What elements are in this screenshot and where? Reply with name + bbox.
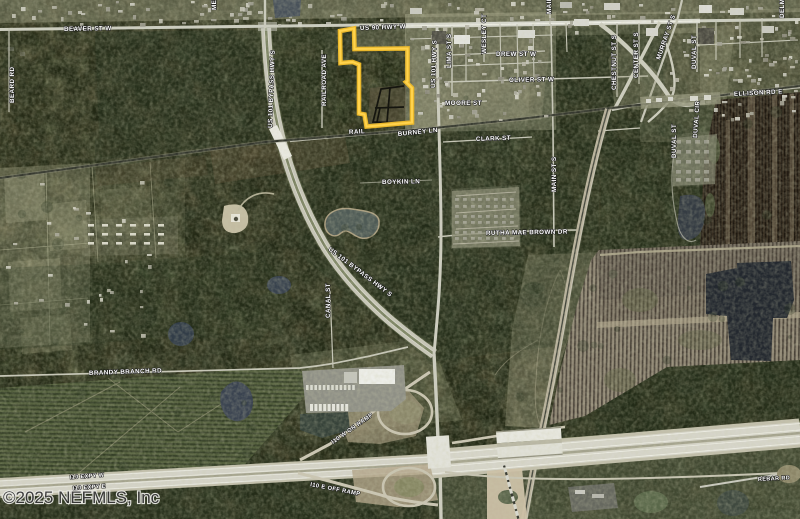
svg-text:DUVAL ST: DUVAL ST	[671, 124, 678, 158]
svg-text:LIMA ST S: LIMA ST S	[446, 33, 453, 68]
svg-text:BOYKIN LN: BOYKIN LN	[382, 178, 420, 186]
svg-text:CENTER ST S: CENTER ST S	[633, 32, 640, 78]
svg-text:CHESTNUT ST S: CHESTNUT ST S	[611, 35, 618, 90]
svg-text:WESLEY CT: WESLEY CT	[481, 14, 488, 54]
svg-text:CANAL ST: CANAL ST	[325, 283, 332, 318]
svg-text:ME: ME	[211, 0, 218, 10]
svg-text:OLIVER ST W: OLIVER ST W	[509, 76, 554, 84]
svg-text:RAIL: RAIL	[349, 128, 366, 136]
svg-text:RAILROAD AVE: RAILROAD AVE	[321, 54, 328, 106]
svg-text:RUTHA MAE BROWN DR: RUTHA MAE BROWN DR	[486, 229, 568, 237]
svg-text:BEAVER ST W: BEAVER ST W	[64, 25, 112, 33]
svg-text:MAIN ST: MAIN ST	[546, 0, 553, 14]
svg-text:CLARK ST: CLARK ST	[476, 135, 511, 143]
svg-text:DREW ST W: DREW ST W	[496, 51, 536, 58]
svg-text:MAIN ST S: MAIN ST S	[551, 157, 558, 192]
svg-text:©2025 NEFMLS, Inc: ©2025 NEFMLS, Inc	[3, 488, 160, 507]
svg-text:MOORE ST: MOORE ST	[445, 100, 482, 107]
svg-text:DELMAR ST: DELMAR ST	[779, 0, 786, 18]
svg-text:BEARD RD: BEARD RD	[9, 67, 16, 103]
svg-text:DUVAL ST: DUVAL ST	[691, 35, 698, 69]
